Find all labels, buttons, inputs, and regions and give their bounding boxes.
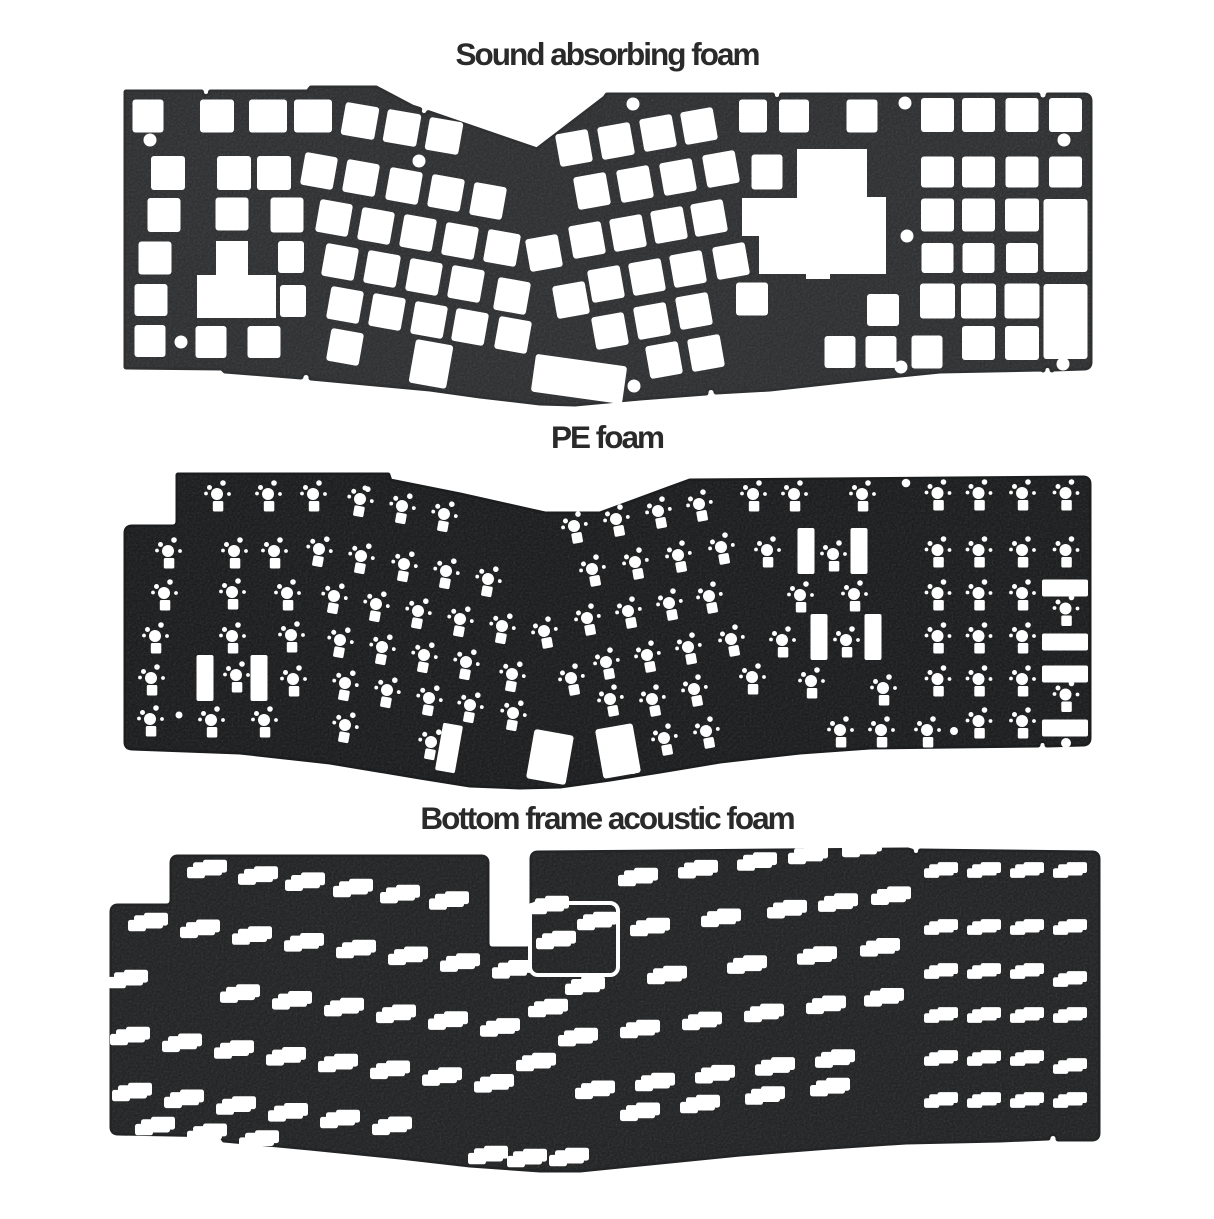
svg-text:Bottom frame acoustic foam: Bottom frame acoustic foam bbox=[420, 800, 794, 836]
svg-text:PE foam: PE foam bbox=[551, 419, 664, 455]
svg-text:Sound absorbing foam: Sound absorbing foam bbox=[456, 36, 760, 72]
